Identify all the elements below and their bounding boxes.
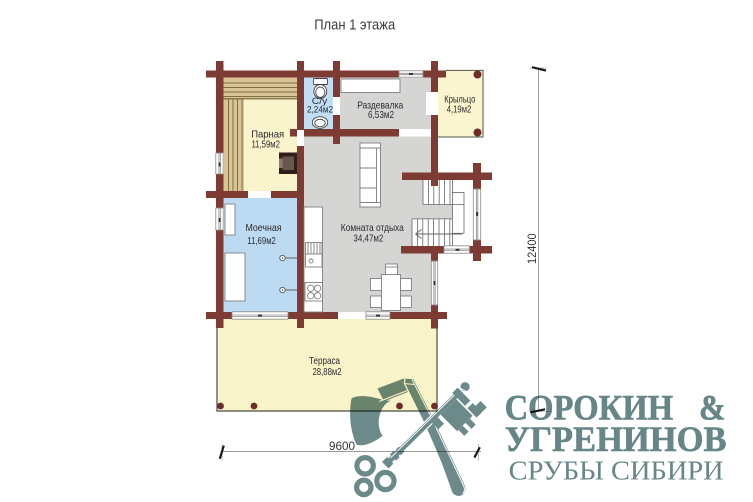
- svg-text:12400: 12400: [526, 233, 539, 264]
- svg-text:УГРЕНИНОВ: УГРЕНИНОВ: [505, 419, 727, 459]
- svg-text:СРУБЫ СИБИРИ: СРУБЫ СИБИРИ: [509, 455, 724, 485]
- svg-text:11,69м2: 11,69м2: [247, 235, 276, 247]
- svg-text:2,24м2: 2,24м2: [307, 105, 333, 116]
- svg-text:Моечная: Моечная: [246, 222, 282, 234]
- svg-text:4,19м2: 4,19м2: [447, 105, 472, 116]
- svg-text:План 1 этажа: План 1 этажа: [314, 16, 396, 33]
- svg-text:28,88м2: 28,88м2: [313, 366, 342, 378]
- svg-text:34,47м2: 34,47м2: [353, 232, 383, 244]
- svg-text:6,53м2: 6,53м2: [368, 109, 394, 121]
- svg-text:11,59м2: 11,59м2: [251, 139, 280, 151]
- svg-text:9600: 9600: [329, 440, 355, 453]
